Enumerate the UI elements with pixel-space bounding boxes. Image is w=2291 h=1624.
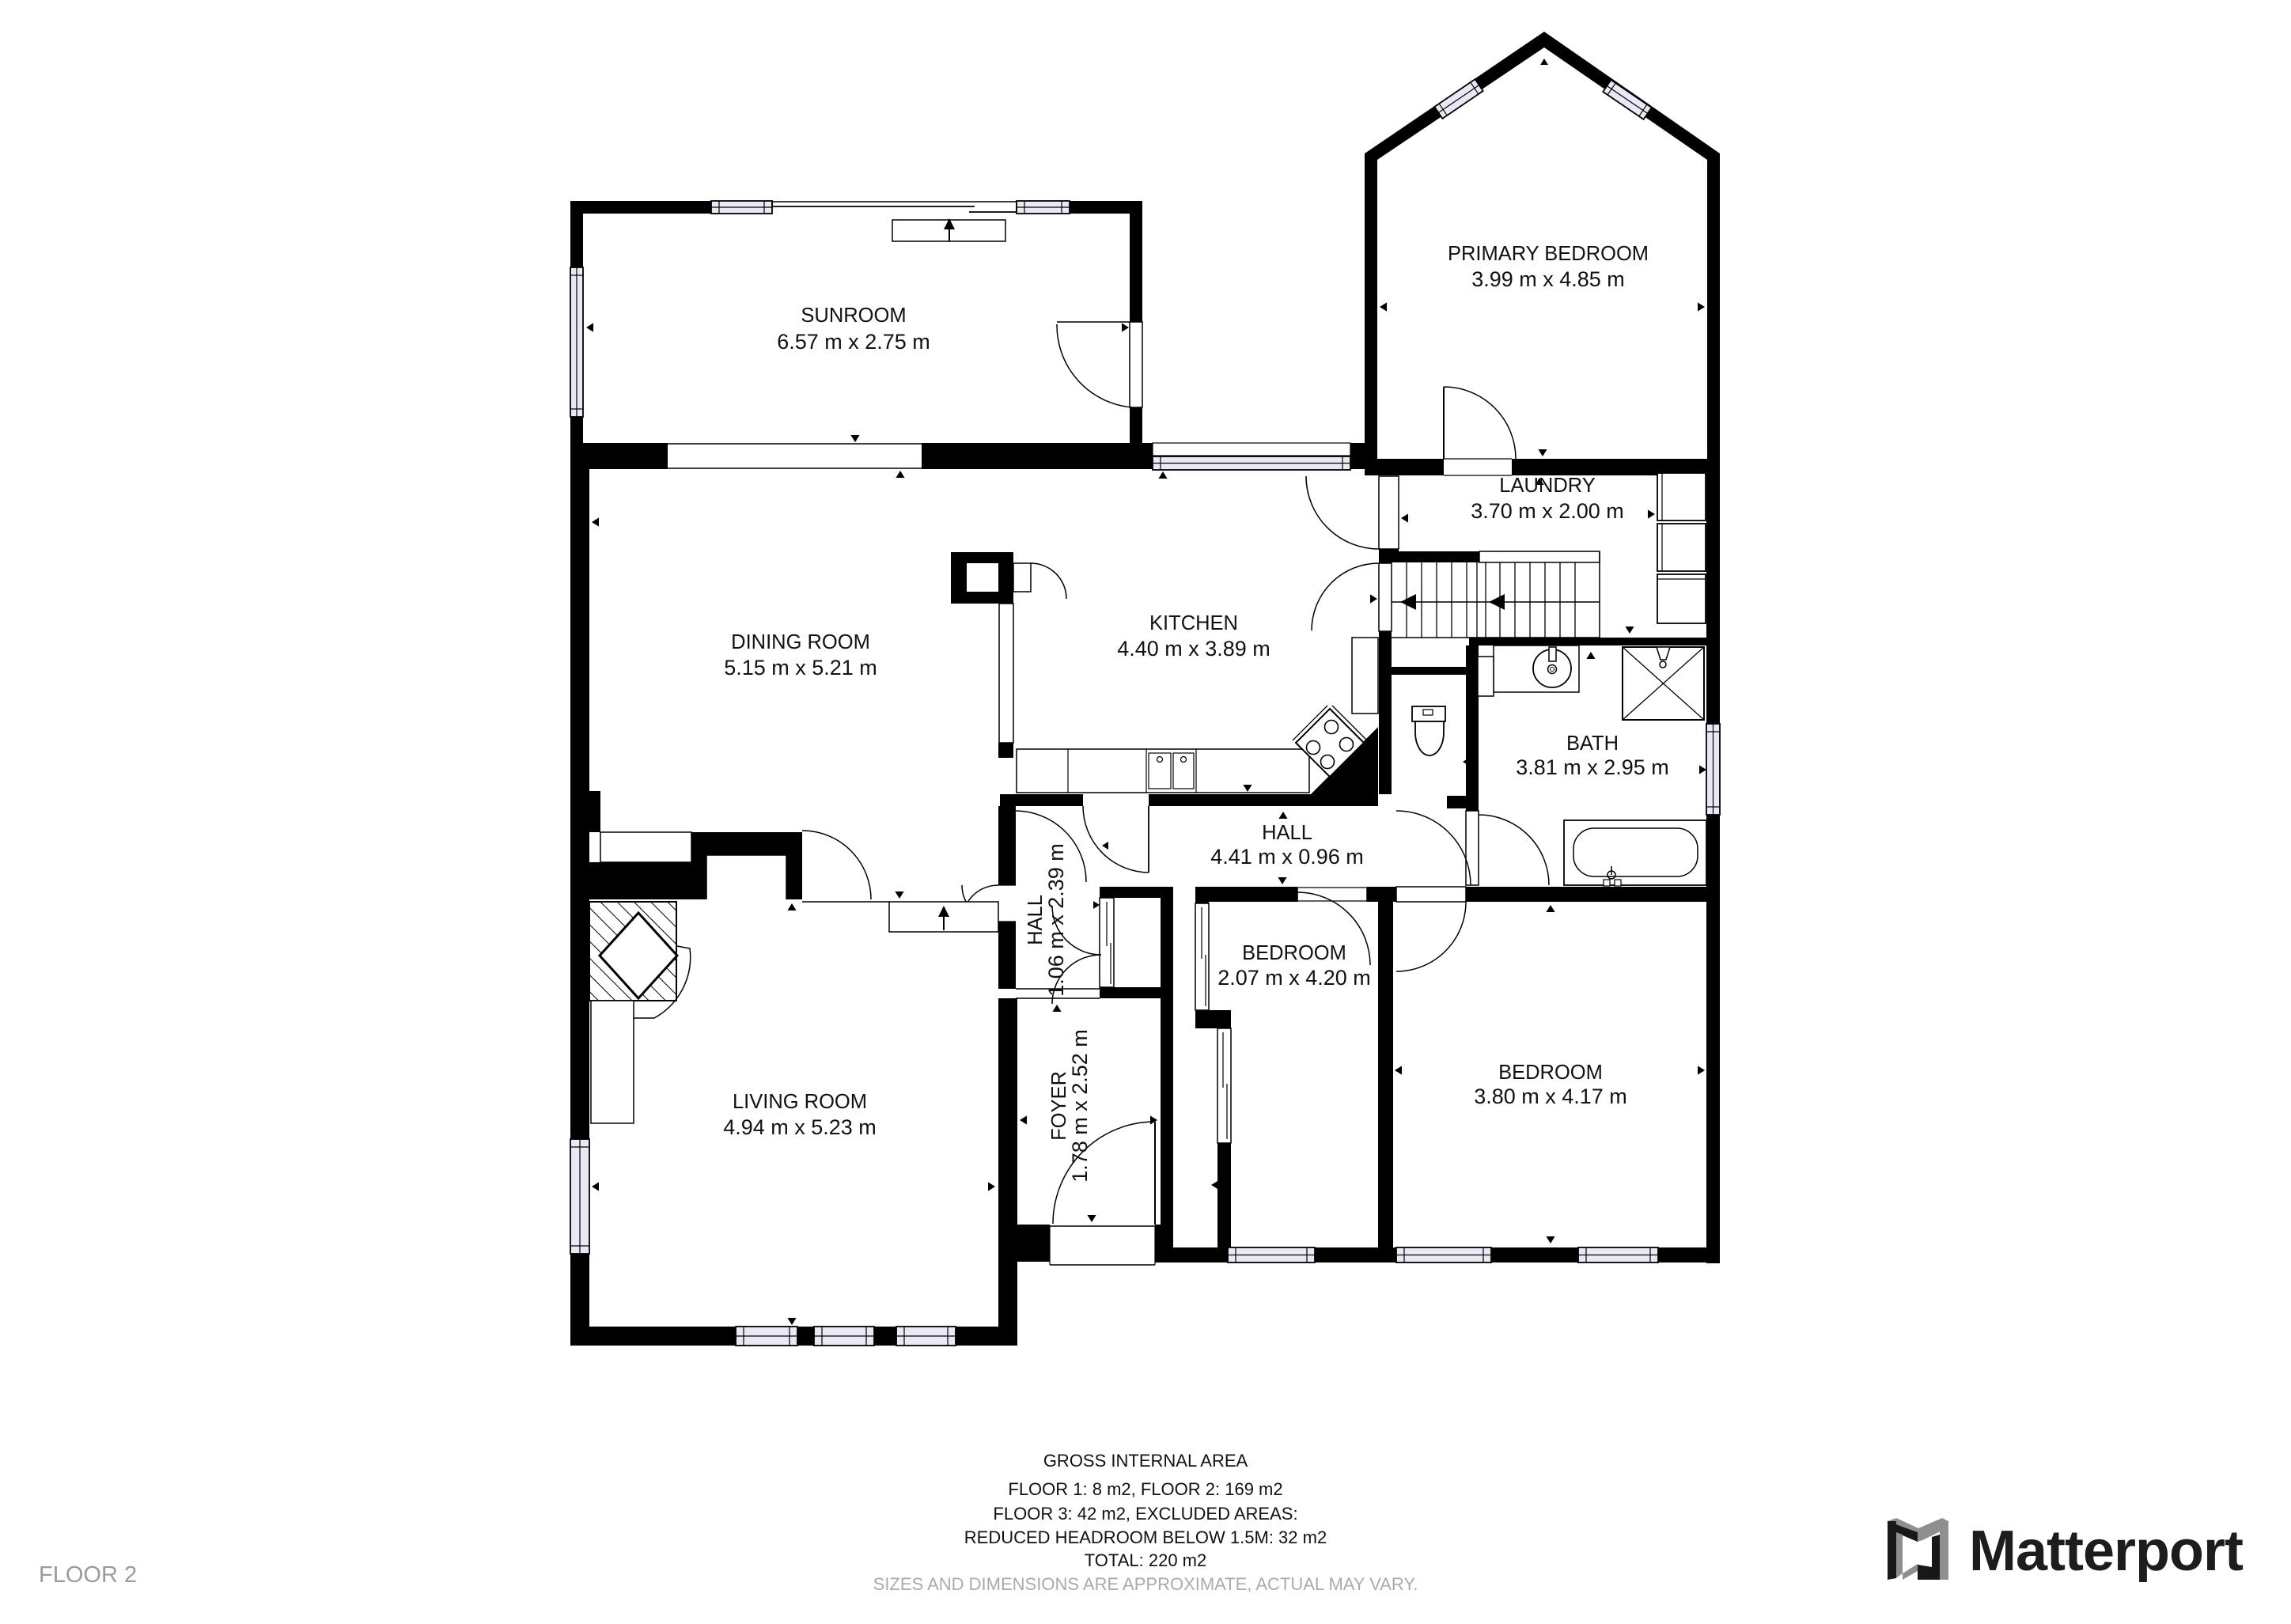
svg-text:5.15 m x 5.21 m: 5.15 m x 5.21 m [724, 656, 877, 680]
svg-text:REDUCED HEADROOM BELOW 1.5M: 3: REDUCED HEADROOM BELOW 1.5M: 32 m2 [964, 1527, 1327, 1547]
svg-text:DINING ROOM: DINING ROOM [731, 631, 870, 653]
svg-text:BATH: BATH [1566, 733, 1619, 755]
svg-text:PRIMARY BEDROOM: PRIMARY BEDROOM [1448, 243, 1649, 265]
svg-text:3.99 m x 4.85 m: 3.99 m x 4.85 m [1471, 267, 1625, 291]
svg-text:FLOOR 2: FLOOR 2 [39, 1562, 137, 1588]
svg-text:FOYER: FOYER [1048, 1071, 1070, 1141]
svg-text:SUNROOM: SUNROOM [801, 305, 906, 327]
svg-text:FLOOR 3: 42 m2, EXCLUDED AREAS: FLOOR 3: 42 m2, EXCLUDED AREAS: [993, 1504, 1297, 1524]
svg-text:BEDROOM: BEDROOM [1242, 942, 1346, 964]
svg-text:1.78 m x 2.52 m: 1.78 m x 2.52 m [1068, 1029, 1092, 1183]
svg-text:FLOOR 1: 8 m2, FLOOR 2: 169 m2: FLOOR 1: 8 m2, FLOOR 2: 169 m2 [1008, 1479, 1282, 1499]
svg-text:KITCHEN: KITCHEN [1149, 612, 1238, 634]
svg-text:4.40 m x 3.89 m: 4.40 m x 3.89 m [1117, 637, 1270, 661]
svg-text:3.70 m x 2.00 m: 3.70 m x 2.00 m [1471, 499, 1624, 523]
svg-text:2.07 m x 4.20 m: 2.07 m x 4.20 m [1217, 966, 1371, 990]
svg-text:LAUNDRY: LAUNDRY [1499, 475, 1595, 497]
svg-text:LIVING ROOM: LIVING ROOM [733, 1091, 867, 1113]
svg-text:GROSS INTERNAL AREA: GROSS INTERNAL AREA [1043, 1451, 1248, 1471]
svg-text:4.41 m x 0.96 m: 4.41 m x 0.96 m [1210, 845, 1364, 869]
svg-text:1.06 m x 2.39 m: 1.06 m x 2.39 m [1044, 843, 1068, 997]
svg-text:BEDROOM: BEDROOM [1498, 1062, 1603, 1084]
svg-text:3.80 m x 4.17 m: 3.80 m x 4.17 m [1474, 1085, 1627, 1108]
svg-text:HALL: HALL [1024, 895, 1047, 945]
svg-text:SIZES AND DIMENSIONS ARE APPRO: SIZES AND DIMENSIONS ARE APPROXIMATE, AC… [873, 1574, 1418, 1594]
svg-text:3.81 m x 2.95 m: 3.81 m x 2.95 m [1516, 755, 1669, 779]
svg-text:4.94 m x 5.23 m: 4.94 m x 5.23 m [723, 1115, 877, 1139]
svg-text:TOTAL: 220 m2: TOTAL: 220 m2 [1085, 1550, 1206, 1570]
svg-text:6.57 m x 2.75 m: 6.57 m x 2.75 m [777, 330, 930, 354]
svg-text:Matterport: Matterport [1969, 1520, 2244, 1583]
svg-text:HALL: HALL [1262, 822, 1312, 844]
